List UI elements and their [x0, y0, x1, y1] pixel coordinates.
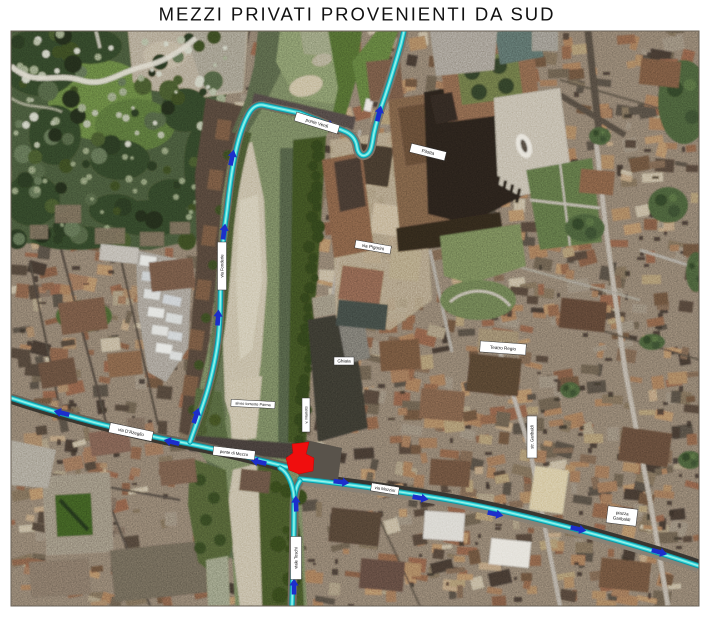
svg-text:viale Toschi: viale Toschi: [294, 547, 299, 569]
svg-text:str. Garibaldi: str. Garibaldi: [530, 425, 535, 449]
svg-text:Ghiaia: Ghiaia: [337, 359, 351, 364]
svg-text:v. Mariotti: v. Mariotti: [304, 406, 309, 423]
svg-text:MEZZI PRIVATI PROVENIENTI DA S: MEZZI PRIVATI PROVENIENTI DA SUD: [159, 4, 556, 25]
svg-text:via Fonderie: via Fonderie: [220, 254, 225, 278]
